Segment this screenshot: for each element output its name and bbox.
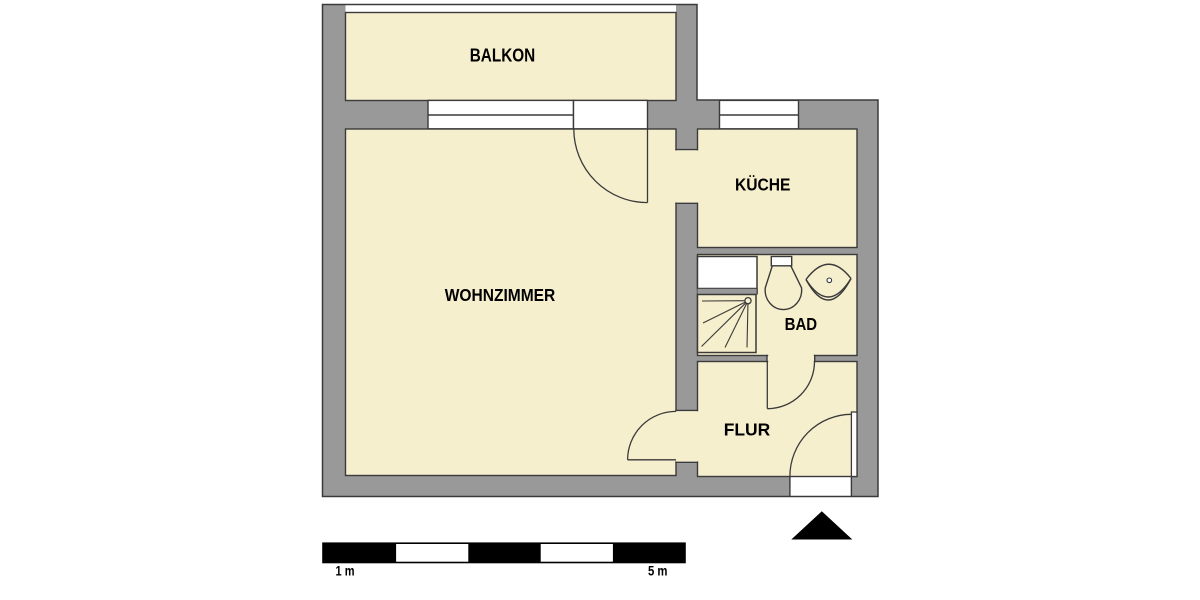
svg-text:BAD: BAD xyxy=(785,314,818,334)
svg-text:KÜCHE: KÜCHE xyxy=(735,175,791,195)
svg-text:5 m: 5 m xyxy=(648,564,668,579)
svg-text:WOHNZIMMER: WOHNZIMMER xyxy=(445,285,556,305)
svg-text:BALKON: BALKON xyxy=(470,46,536,66)
svg-text:1 m: 1 m xyxy=(336,564,355,579)
svg-text:FLUR: FLUR xyxy=(724,420,771,440)
